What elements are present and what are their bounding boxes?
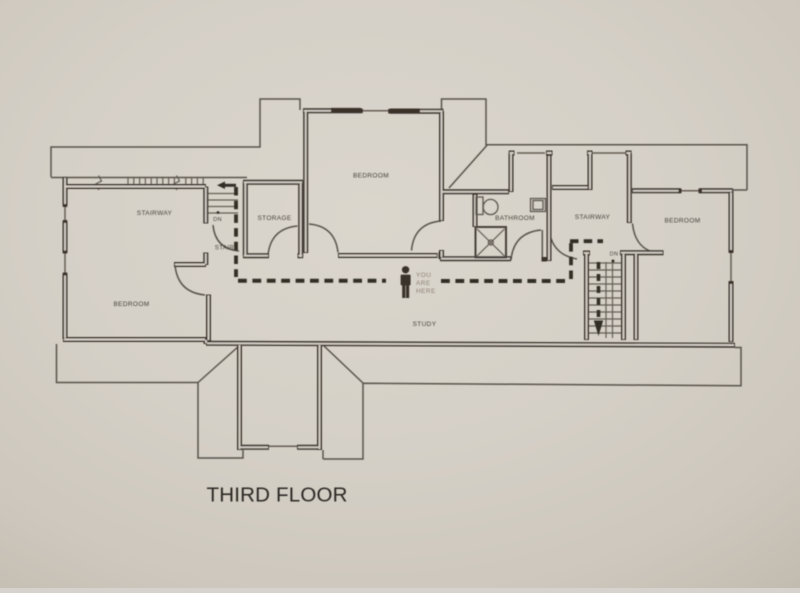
svg-text:BEDROOM: BEDROOM	[113, 301, 149, 308]
svg-text:BATHROOM: BATHROOM	[495, 215, 535, 222]
svg-text:STAIRWAY: STAIRWAY	[137, 210, 173, 217]
svg-text:BEDROOM: BEDROOM	[353, 173, 389, 180]
svg-text:DN: DN	[213, 217, 222, 223]
svg-text:THIRD FLOOR: THIRD FLOOR	[207, 484, 348, 507]
svg-text:ARE: ARE	[416, 280, 431, 287]
svg-text:HERE: HERE	[416, 288, 436, 295]
svg-text:YOU: YOU	[416, 272, 431, 279]
svg-text:STAIR: STAIR	[215, 245, 235, 252]
svg-text:STORAGE: STORAGE	[257, 215, 291, 222]
svg-text:BEDROOM: BEDROOM	[664, 218, 700, 225]
svg-text:STAIRWAY: STAIRWAY	[575, 214, 611, 221]
svg-text:DN: DN	[610, 252, 619, 258]
svg-text:STUDY: STUDY	[413, 321, 437, 328]
